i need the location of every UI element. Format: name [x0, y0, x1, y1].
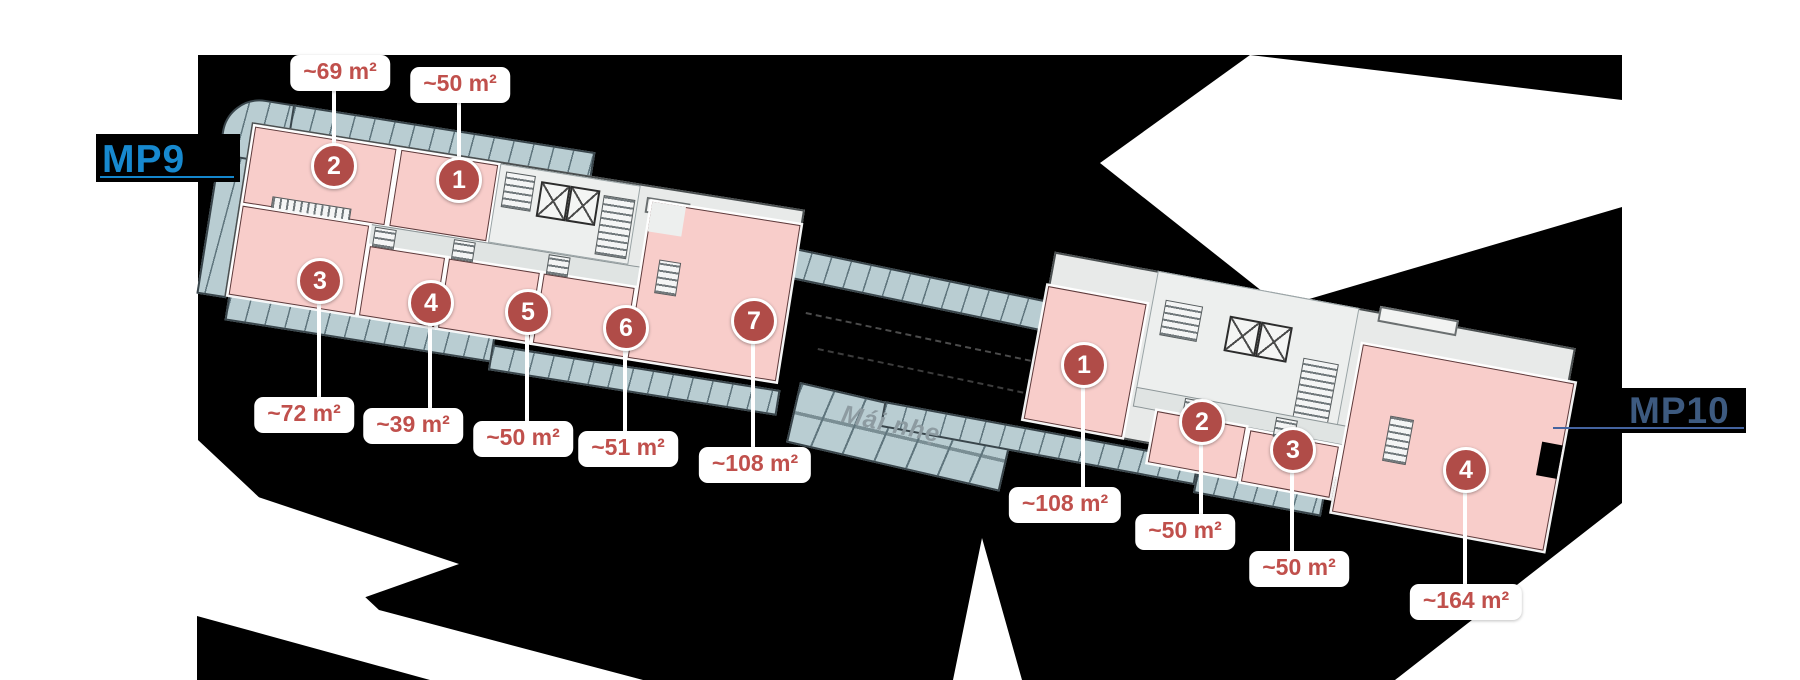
area-label-mp9-4: ~39 m² [363, 408, 463, 444]
leader-line-mp9-1 [457, 97, 461, 162]
unit-marker-mp10-1[interactable]: 1 [1061, 342, 1107, 388]
area-label-mp10-2: ~50 m² [1135, 514, 1235, 550]
area-label-mp10-3: ~50 m² [1249, 551, 1349, 587]
area-label-mp9-6: ~51 m² [578, 431, 678, 467]
leader-line-mp9-4 [428, 322, 432, 411]
leader-line-mp10-3 [1290, 471, 1294, 555]
leader-line-mp10-2 [1199, 443, 1203, 517]
leader-line-mp10-4 [1463, 491, 1467, 587]
unit-marker-mp9-5[interactable]: 5 [505, 289, 551, 335]
unit-marker-mp9-1[interactable]: 1 [436, 157, 482, 203]
area-label-mp10-4: ~164 m² [1410, 584, 1522, 620]
unit-marker-mp10-3[interactable]: 3 [1270, 427, 1316, 473]
floorplan-canvas: Mái nhẹ MP9 MP10 ~50 m²1~69 m²2~72 m²3~3… [0, 0, 1800, 680]
area-label-mp9-1: ~50 m² [410, 67, 510, 103]
leader-line-mp9-2 [332, 89, 336, 148]
unit-marker-mp9-7[interactable]: 7 [731, 298, 777, 344]
leader-line-mp9-7 [751, 340, 755, 450]
area-label-mp9-3: ~72 m² [254, 397, 354, 433]
leader-line-mp9-6 [623, 347, 627, 434]
unit-marker-mp9-4[interactable]: 4 [408, 280, 454, 326]
unit-marker-mp9-2[interactable]: 2 [311, 143, 357, 189]
leader-line-mp10-1 [1081, 386, 1085, 490]
area-label-mp10-1: ~108 m² [1009, 487, 1121, 523]
unit-markers-layer: ~50 m²1~69 m²2~72 m²3~39 m²4~50 m²5~51 m… [0, 0, 1800, 680]
area-label-mp9-2: ~69 m² [290, 55, 390, 91]
leader-line-mp9-3 [317, 300, 321, 400]
area-label-mp9-7: ~108 m² [699, 447, 811, 483]
area-label-mp9-5: ~50 m² [473, 421, 573, 457]
unit-marker-mp9-3[interactable]: 3 [297, 258, 343, 304]
leader-line-mp9-5 [525, 331, 529, 424]
unit-marker-mp9-6[interactable]: 6 [603, 305, 649, 351]
unit-marker-mp10-4[interactable]: 4 [1443, 447, 1489, 493]
unit-marker-mp10-2[interactable]: 2 [1179, 399, 1225, 445]
